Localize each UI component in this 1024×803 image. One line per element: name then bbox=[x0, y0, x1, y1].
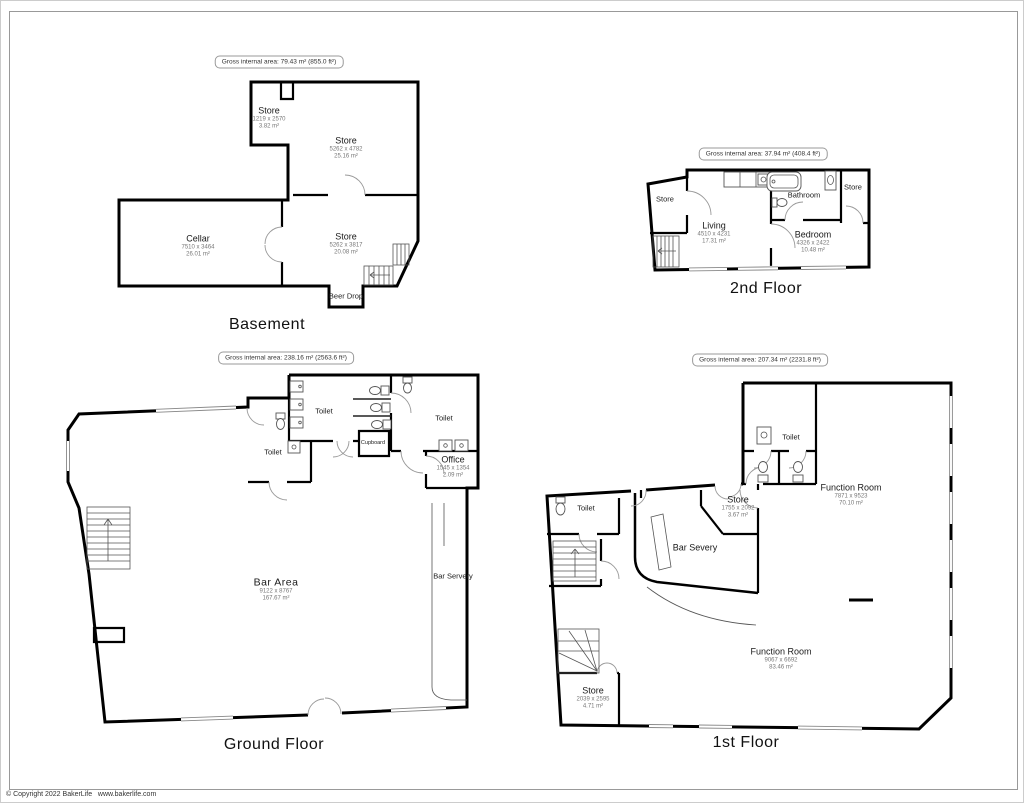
ground-floor-walls bbox=[68, 375, 478, 722]
floor-title-first-floor: 1st Floor bbox=[713, 734, 780, 752]
room-label-store: Store bbox=[656, 196, 674, 205]
toilet-tank bbox=[556, 497, 565, 503]
room-label-store: Store 2039 x 2595 4.71 m² bbox=[576, 686, 609, 711]
room-label-store: Store 1755 x 2092 3.67 m² bbox=[721, 495, 754, 520]
toilet-bowl bbox=[794, 462, 803, 473]
gross-area-label-first-floor: Gross internal area: 207.34 m² (2231.8 f… bbox=[692, 354, 828, 367]
second-floor-plan bbox=[648, 170, 869, 271]
room-label-living: Living 4510 x 4231 17.31 m² bbox=[697, 221, 730, 246]
basement-stairs bbox=[364, 244, 409, 285]
ground-floor-door-arcs bbox=[247, 393, 444, 715]
room-label-toilet: Toilet bbox=[315, 408, 333, 417]
room-label-store: Store 1219 x 2570 3.82 m² bbox=[252, 106, 285, 131]
first-floor-fixtures bbox=[556, 427, 803, 515]
first-floor-stairs bbox=[553, 541, 599, 673]
toilet-tank bbox=[772, 198, 777, 207]
toilet-bowl bbox=[777, 199, 787, 207]
toilet-bowl bbox=[277, 419, 285, 430]
room-label-toilet: Toilet bbox=[782, 434, 800, 443]
room-label-bedroom: Bedroom 4326 x 2422 10.48 m² bbox=[795, 230, 832, 255]
room-label-toilet: Toilet bbox=[264, 449, 282, 458]
toilet-tank bbox=[793, 475, 803, 482]
bathroom-sink bbox=[825, 171, 836, 190]
room-label-toilet: Toilet bbox=[577, 505, 595, 514]
toilet-bowl bbox=[404, 383, 412, 393]
floor-title-ground-floor: Ground Floor bbox=[224, 736, 324, 754]
bar-counter bbox=[432, 503, 467, 700]
room-label-office: Office 1545 x 1354 2.09 m² bbox=[436, 455, 469, 480]
gross-area-label-basement: Gross internal area: 79.43 m² (855.0 ft²… bbox=[215, 56, 344, 69]
first-floor-windows bbox=[649, 396, 952, 730]
room-label-function-room: Function Room 9067 x 6692 83.46 m² bbox=[750, 647, 811, 672]
toilet-tank bbox=[382, 403, 390, 412]
room-label-store: Store bbox=[844, 184, 862, 193]
toilet-tank bbox=[403, 377, 412, 383]
second-floor-stairs bbox=[653, 236, 679, 267]
room-label-function-room: Function Room 7871 x 9523 70.10 m² bbox=[820, 483, 881, 508]
room-label-store: Store 5262 x 4782 25.16 m² bbox=[329, 136, 362, 161]
sink bbox=[757, 427, 771, 444]
room-label-store: Store 5262 x 3817 20.08 m² bbox=[329, 232, 362, 257]
floorplan-page: Gross internal area: 79.43 m² (855.0 ft²… bbox=[0, 0, 1024, 803]
second-floor-fixtures bbox=[724, 171, 836, 207]
room-label-toilet: Toilet bbox=[435, 415, 453, 424]
floor-title-basement: Basement bbox=[229, 316, 305, 334]
ground-floor-plan bbox=[67, 375, 479, 722]
toilet-bowl bbox=[370, 387, 381, 395]
copyright-text: © Copyright 2022 BakerLife www.bakerlife… bbox=[6, 791, 156, 798]
gross-area-label-second-floor: Gross internal area: 37.94 m² (408.4 ft²… bbox=[699, 148, 828, 161]
room-label-cupboard: Cupboard bbox=[361, 440, 385, 446]
first-floor-walls bbox=[547, 383, 951, 729]
toilet-tank bbox=[383, 420, 391, 429]
sink bbox=[455, 440, 468, 451]
toilet-tank bbox=[758, 475, 768, 482]
room-label-bar-servery: Bar Servery bbox=[433, 573, 473, 582]
room-label-beer-drop: Beer Drop bbox=[329, 293, 363, 302]
toilet-bowl bbox=[371, 404, 382, 412]
second-floor-windows bbox=[689, 266, 846, 271]
first-floor-plan bbox=[547, 383, 952, 730]
floorplan-geometry-svg bbox=[1, 1, 1024, 803]
gross-area-label-ground-floor: Gross internal area: 238.16 m² (2563.6 f… bbox=[218, 352, 354, 365]
floor-title-second-floor: 2nd Floor bbox=[730, 280, 802, 298]
toilet-bowl bbox=[556, 503, 565, 515]
sink bbox=[288, 441, 300, 453]
room-label-bathroom: Bathroom bbox=[788, 192, 821, 201]
toilet-tank bbox=[381, 386, 389, 395]
ground-floor-stairs bbox=[87, 507, 130, 569]
room-label-bar-severy: Bar Severy bbox=[673, 543, 718, 554]
sink bbox=[439, 440, 452, 451]
toilet-bowl bbox=[759, 462, 768, 473]
stairs-direction-arrow bbox=[370, 272, 390, 278]
room-label-cellar: Cellar 7510 x 3464 26.01 m² bbox=[181, 234, 214, 259]
servery-counter bbox=[647, 514, 756, 625]
toilet-bowl bbox=[372, 421, 383, 429]
room-label-bar-area: Bar Area 9122 x 8767 167.67 m² bbox=[254, 577, 299, 604]
